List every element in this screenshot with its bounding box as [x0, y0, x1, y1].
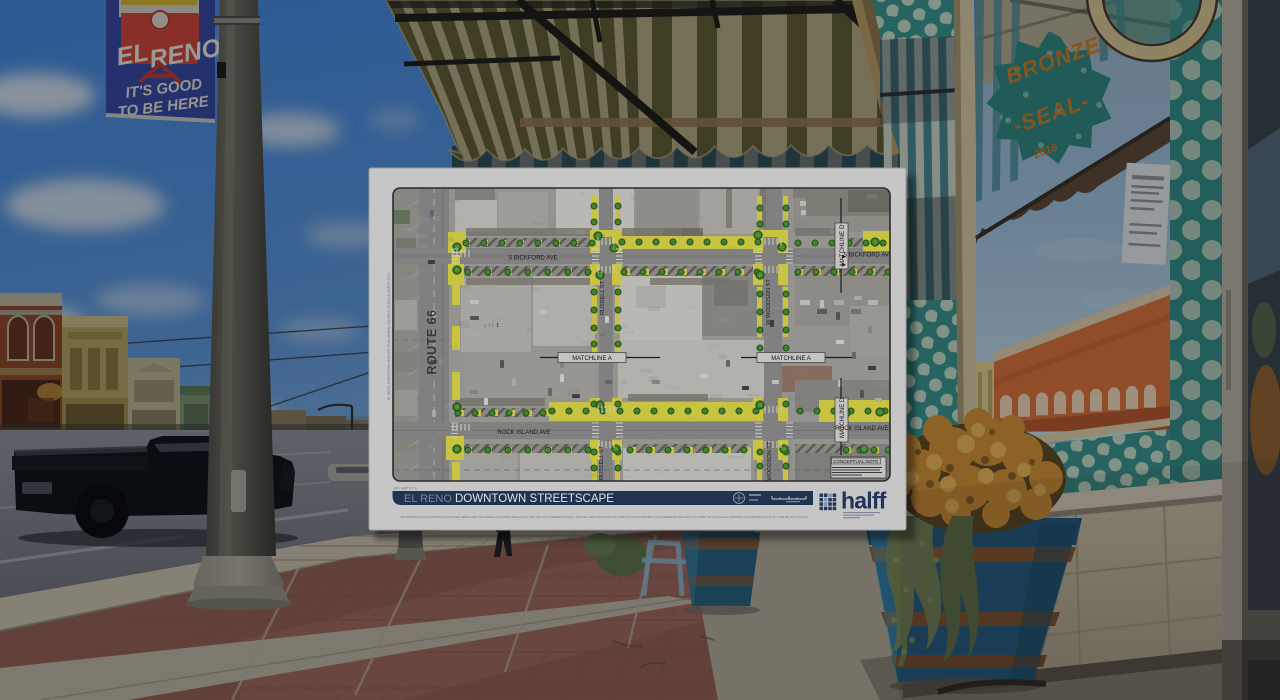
svg-text:THE DRAWINGS AND INFORMATION C: THE DRAWINGS AND INFORMATION CONTAINED H…: [400, 515, 809, 519]
svg-text:EL RENO: EL RENO: [404, 493, 452, 505]
svg-text:KEY MAP N.T.S.: KEY MAP N.T.S.: [394, 487, 418, 491]
svg-text:halff: halff: [841, 488, 887, 514]
svg-text:DOWNTOWN STREETSCAPE: DOWNTOWN STREETSCAPE: [455, 493, 614, 505]
svg-text:EL RENO DOWNTOWN MASTER PLAN: EL RENO DOWNTOWN MASTER PLAN AERIAL SOUR…: [387, 273, 391, 400]
